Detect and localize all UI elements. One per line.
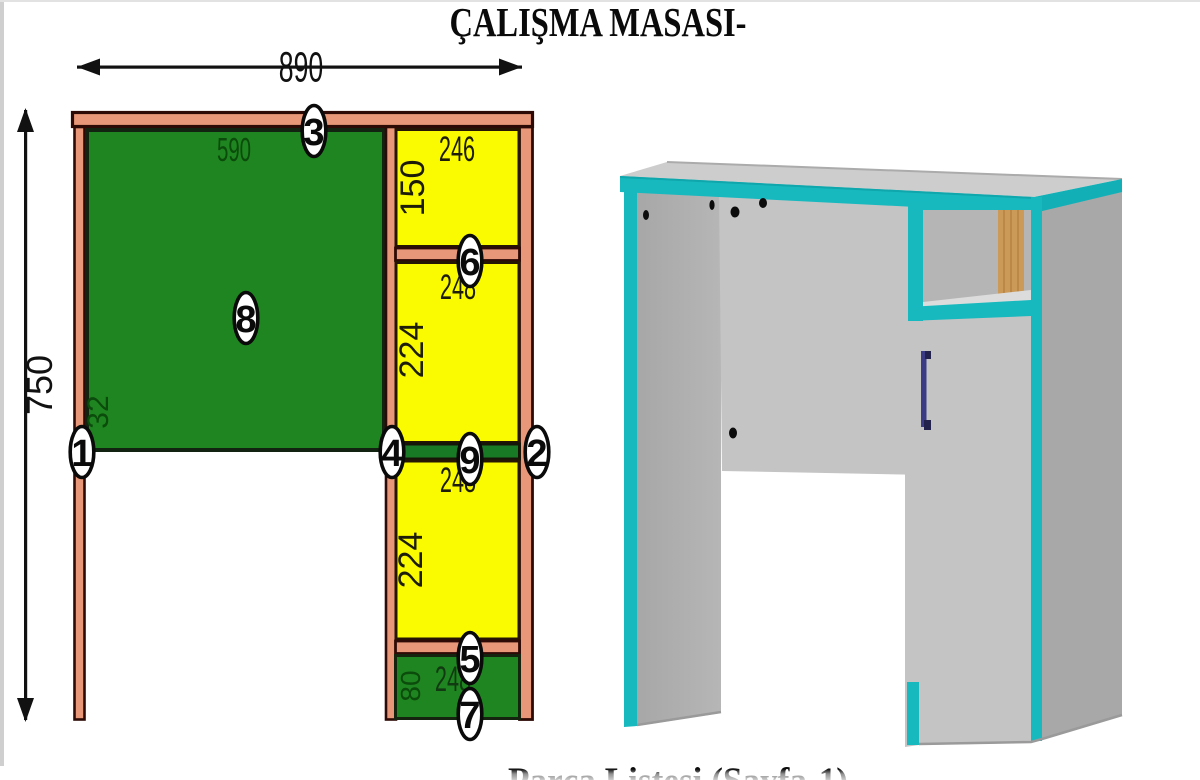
svg-text:9: 9 [459,440,480,482]
svg-text:246: 246 [439,131,475,169]
svg-text:5: 5 [459,639,480,681]
svg-text:ÇALIŞMA MASASI-: ÇALIŞMA MASASI- [450,0,747,45]
svg-text:3: 3 [303,112,324,154]
svg-text:7: 7 [459,695,480,737]
svg-text:890: 890 [279,43,323,91]
svg-text:150: 150 [394,160,432,217]
svg-text:590: 590 [217,131,251,168]
svg-text:32: 32 [82,395,115,428]
svg-text:2: 2 [526,433,547,475]
svg-text:80: 80 [395,670,426,701]
svg-text:224: 224 [393,322,431,379]
svg-text:4: 4 [381,433,402,475]
svg-text:224: 224 [392,532,430,589]
svg-text:1: 1 [71,433,92,475]
svg-text:6: 6 [459,242,480,284]
svg-text:8: 8 [235,299,256,341]
svg-text:750: 750 [19,355,60,415]
